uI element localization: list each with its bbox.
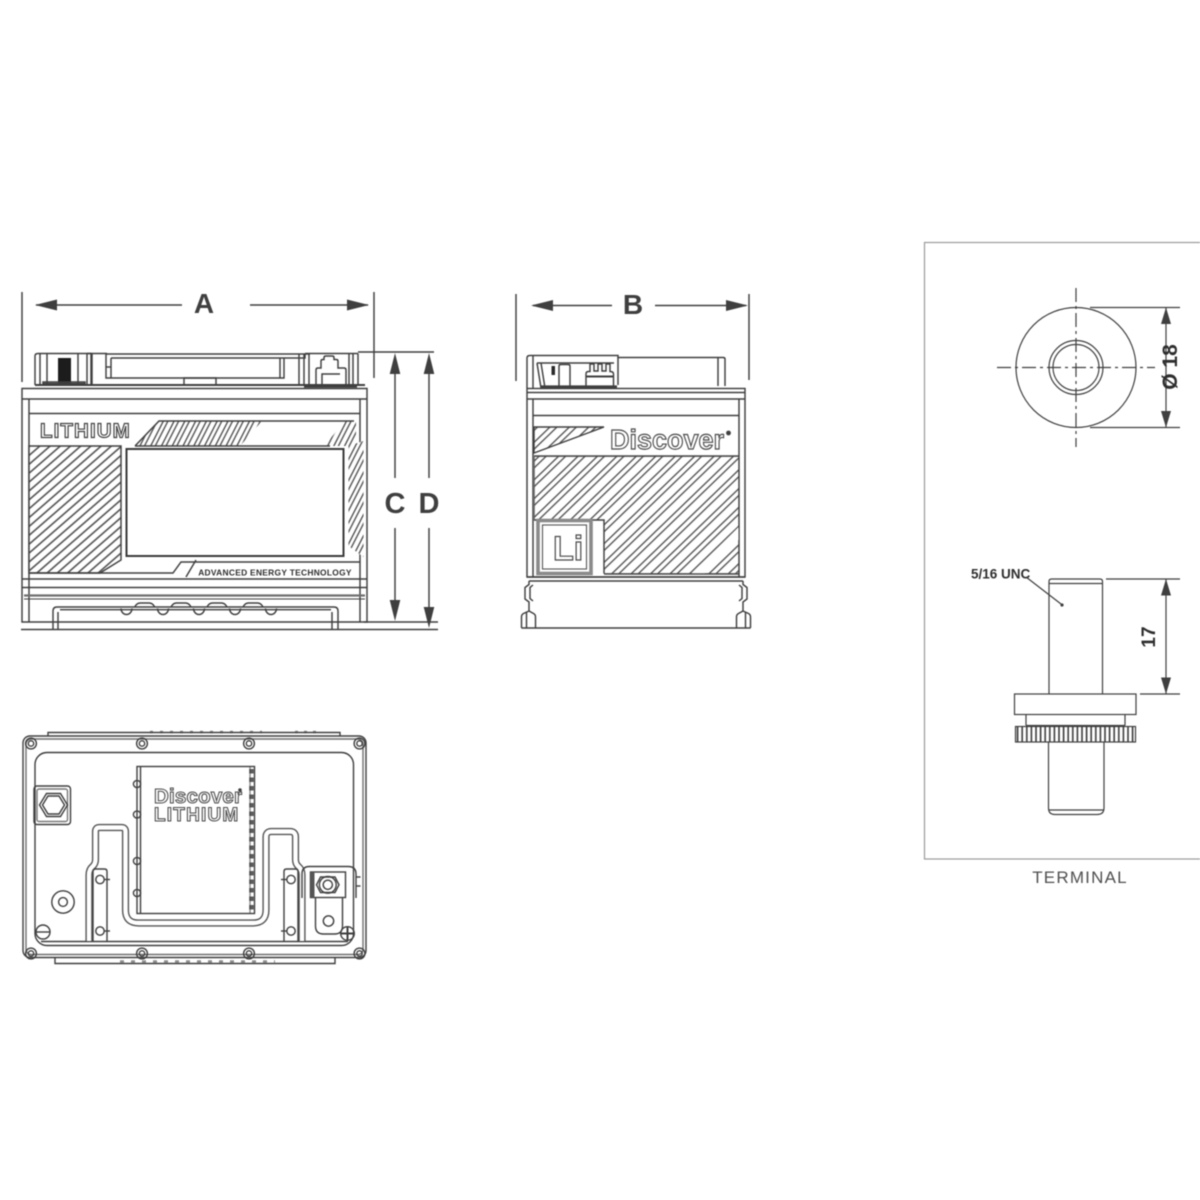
svg-text:Discover: Discover	[610, 424, 724, 455]
svg-text:Li: Li	[553, 530, 583, 568]
svg-text:C: C	[385, 488, 406, 520]
svg-text:D: D	[419, 488, 440, 520]
svg-text:A: A	[194, 288, 214, 319]
svg-text:5/16 UNC: 5/16 UNC	[971, 567, 1031, 582]
svg-text:17: 17	[1139, 626, 1160, 647]
svg-text:LITHIUM: LITHIUM	[40, 420, 131, 443]
svg-text:TERMINAL: TERMINAL	[1032, 868, 1128, 887]
svg-text:B: B	[623, 289, 643, 320]
svg-text:Ø 18: Ø 18	[1159, 344, 1182, 390]
svg-text:ADVANCED ENERGY TECHNOLOGY: ADVANCED ENERGY TECHNOLOGY	[198, 568, 352, 578]
svg-text:LITHIUM: LITHIUM	[154, 805, 239, 826]
